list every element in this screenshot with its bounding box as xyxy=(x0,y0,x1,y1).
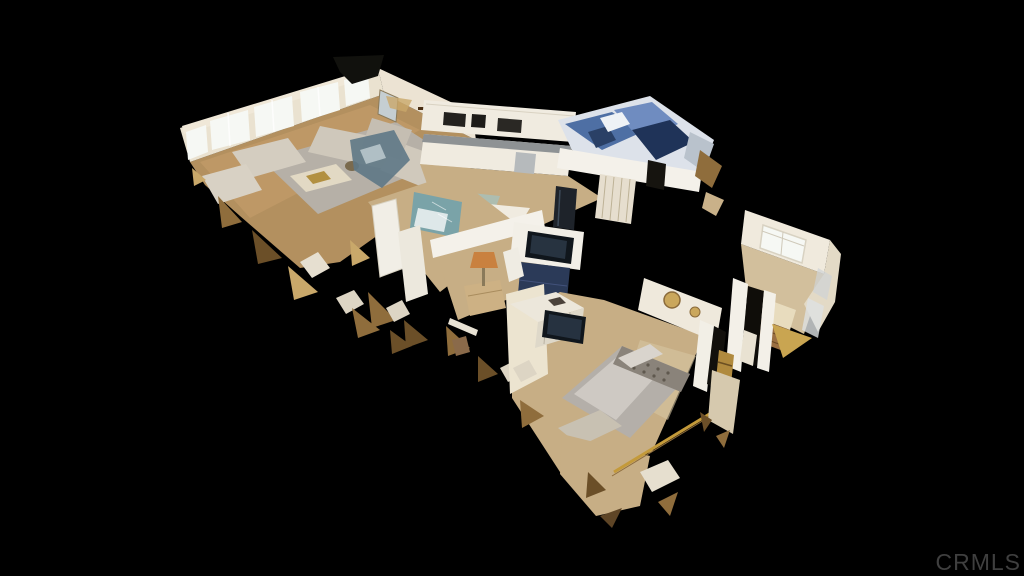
gold-mirror-icon xyxy=(664,292,680,308)
amber-lamp-icon xyxy=(470,252,498,268)
dishwasher xyxy=(514,152,536,174)
counter-appliance xyxy=(443,112,466,127)
lamp-stem xyxy=(482,268,485,286)
tuft xyxy=(666,371,669,374)
tuft xyxy=(662,378,665,381)
tuft xyxy=(646,363,649,366)
counter-appliance xyxy=(471,114,486,128)
tuft xyxy=(656,367,659,370)
microwave xyxy=(497,118,522,133)
doorway-gap xyxy=(646,160,666,190)
refrigerator xyxy=(553,186,577,230)
tuft xyxy=(642,370,645,373)
tuft xyxy=(652,374,655,377)
listing-photo-dollhouse-view: CRMLS xyxy=(0,0,1024,576)
gold-mirror-icon xyxy=(690,307,700,317)
crmls-watermark: CRMLS xyxy=(935,549,1021,575)
